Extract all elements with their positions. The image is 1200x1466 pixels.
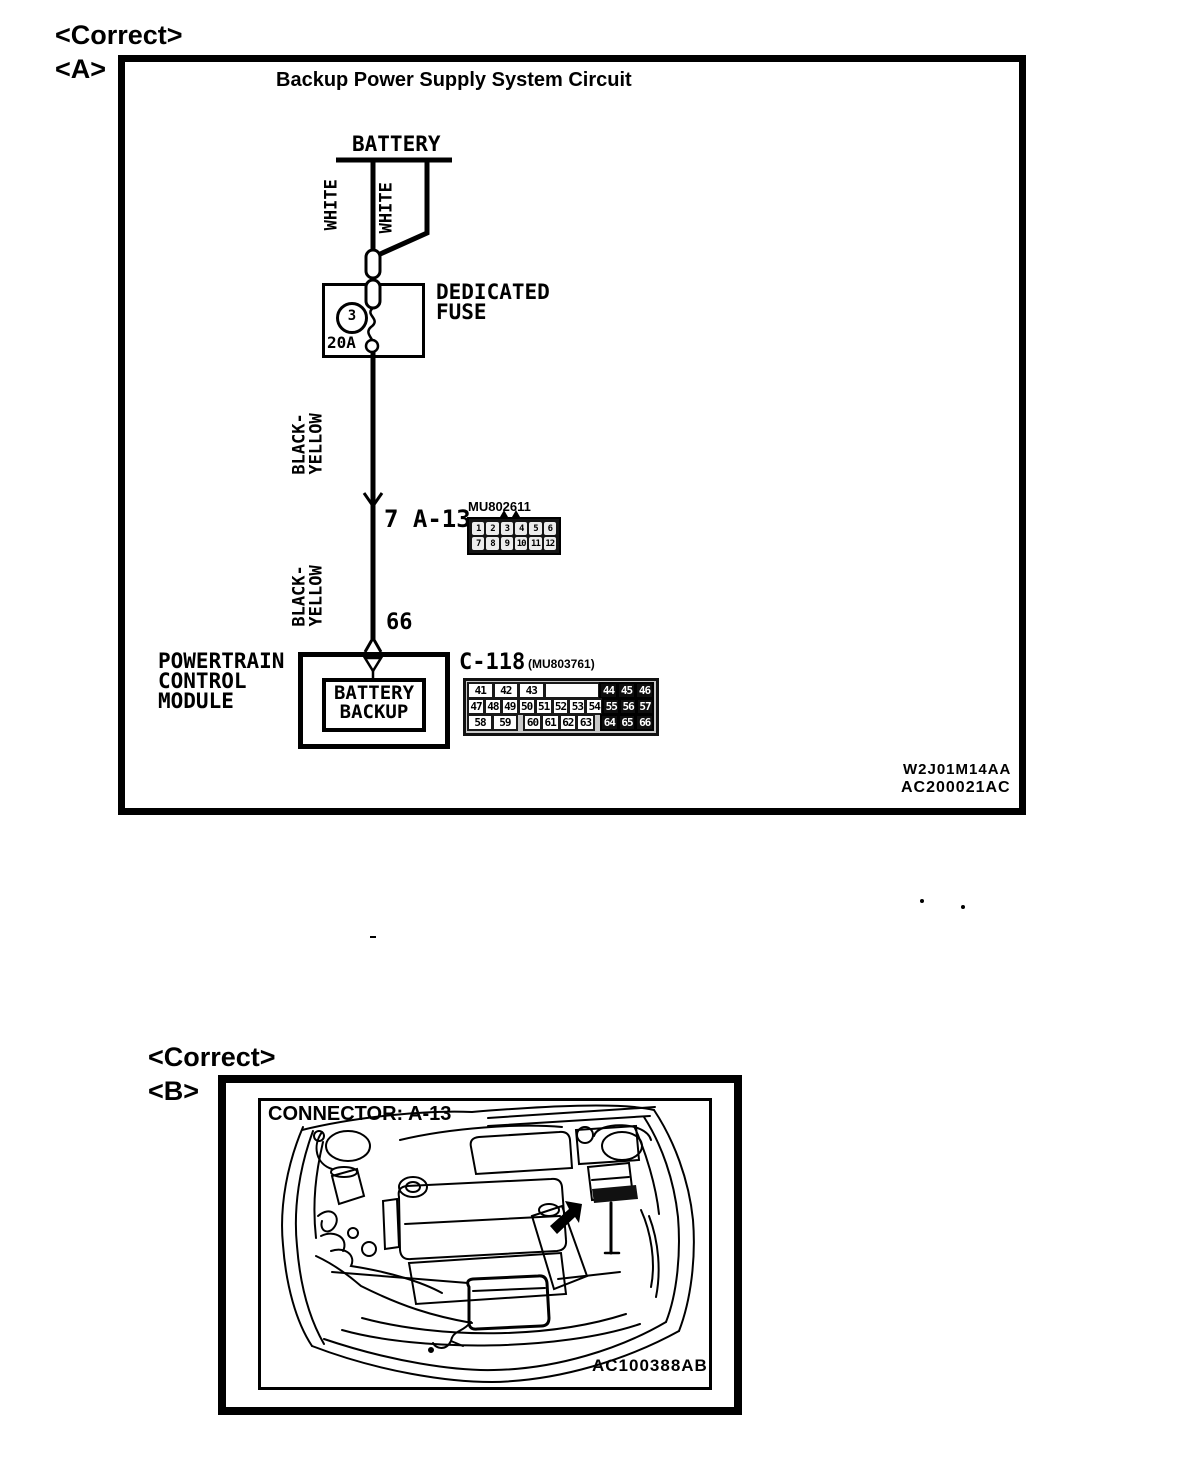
pin-cell-4: 4 [515,522,527,535]
junction-pin-connector-label: 7 A-13 [384,505,471,533]
pin-cell-64: 64 [600,714,619,731]
pin-cell-1: 1 [472,522,484,535]
pin-cell-58: 58 [467,714,493,731]
battery-backup-label: BATTERY BACKUP [334,684,414,722]
pin-cell-49: 49 [501,698,519,715]
scan-artifacts [370,899,965,938]
fuse-name: DEDICATED FUSE [436,283,550,323]
pin-row: 123456 [471,522,557,535]
pin-cell-55: 55 [602,698,620,715]
wire-color-black-yellow-1: BLACK- YELLOW [291,413,326,474]
c118-connector-code: (MU803761) [528,657,595,671]
pin-row: 414243444546 [468,683,654,699]
pin-cell-43: 43 [518,682,545,699]
pin-row: 789101112 [471,537,557,550]
c118-connector-label: C-118 [459,650,525,675]
fuse-number-badge: 3 [336,302,368,334]
battery-label: BATTERY [352,132,441,156]
section-a-tag: <A> [55,54,106,85]
pin-row: 585960616263646566 [468,715,654,731]
connector-location-inner-frame [258,1098,712,1390]
pin-cell-56: 56 [619,698,637,715]
pin-cell-63: 63 [576,714,595,731]
pin-cell-blank [544,682,601,699]
pin-cell-62: 62 [559,714,578,731]
pin-cell-11: 11 [529,537,541,550]
fuse-rating: 20A [327,333,356,352]
pin-cell-50: 50 [518,698,536,715]
pin-cell-46: 46 [635,682,654,699]
scanned-wiring-diagram-page: <Correct> <A> Backup Power Supply System… [0,0,1200,1466]
illustration-code: AC100388AB [592,1356,708,1376]
pin-row: 4748495051525354555657 [468,699,654,715]
wire-color-white-1: WHITE [324,179,341,230]
diagram-code-1: W2J01M14AA [903,761,1011,778]
pin-cell-61: 61 [541,714,560,731]
pin-cell-3: 3 [501,522,513,535]
pin-cell-2: 2 [486,522,498,535]
pin-cell-42: 42 [493,682,520,699]
pin-cell-8: 8 [486,537,498,550]
correct-label-b: <Correct> [148,1042,276,1073]
connector-location-title: CONNECTOR: A-13 [268,1103,451,1126]
pin-cell-65: 65 [618,714,637,731]
pin-cell-10: 10 [515,537,527,550]
section-b-tag: <B> [148,1076,199,1107]
pin-cell-6: 6 [544,522,556,535]
a13-pin-grid: 123456789101112 [467,517,561,555]
pin-cell-48: 48 [484,698,502,715]
pin-cell-51: 51 [535,698,553,715]
pin-cell-7: 7 [472,537,484,550]
pin-cell-66: 66 [635,714,654,731]
pin-cell-5: 5 [529,522,541,535]
pin-cell-44: 44 [599,682,618,699]
pcm-pin-number: 66 [386,610,413,635]
pin-cell-54: 54 [585,698,603,715]
pin-cell-45: 45 [617,682,636,699]
pin-cell-41: 41 [467,682,494,699]
circuit-title: Backup Power Supply System Circuit [276,69,632,92]
correct-label-a: <Correct> [55,20,183,51]
pcm-label: POWERTRAIN CONTROL MODULE [158,652,284,712]
wire-color-white-2: WHITE [379,182,396,233]
pin-cell-57: 57 [636,698,654,715]
pin-cell-53: 53 [568,698,586,715]
pin-cell-60: 60 [523,714,542,731]
pin-cell-59: 59 [492,714,518,731]
pin-cell-12: 12 [544,537,556,550]
pin-cell-47: 47 [467,698,485,715]
diagram-code-2: AC200021AC [901,779,1011,797]
a13-connector-code: MU802611 [468,499,531,514]
pin-cell-9: 9 [501,537,513,550]
wire-color-black-yellow-2: BLACK- YELLOW [291,565,326,626]
c118-pin-grid: 4142434445464748495051525354555657585960… [463,678,659,736]
pin-cell-52: 52 [552,698,570,715]
